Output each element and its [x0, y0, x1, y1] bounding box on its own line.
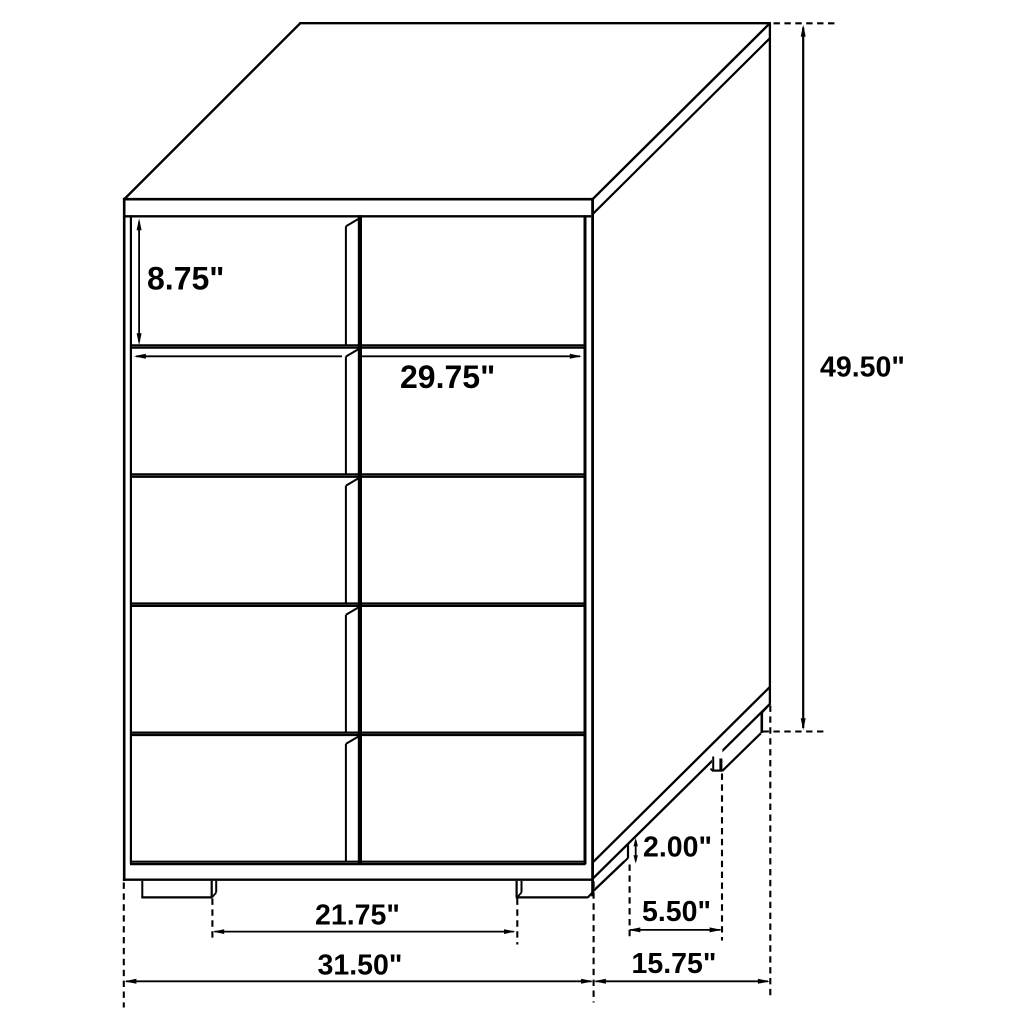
svg-text:21.75": 21.75"	[315, 900, 400, 932]
svg-text:8.75": 8.75"	[147, 261, 224, 297]
svg-text:29.75": 29.75"	[400, 359, 495, 395]
svg-text:31.50": 31.50"	[318, 950, 403, 982]
svg-text:49.50": 49.50"	[820, 352, 905, 384]
svg-text:5.50": 5.50"	[642, 896, 711, 928]
svg-text:15.75": 15.75"	[632, 948, 717, 980]
svg-text:2.00": 2.00"	[643, 832, 712, 864]
